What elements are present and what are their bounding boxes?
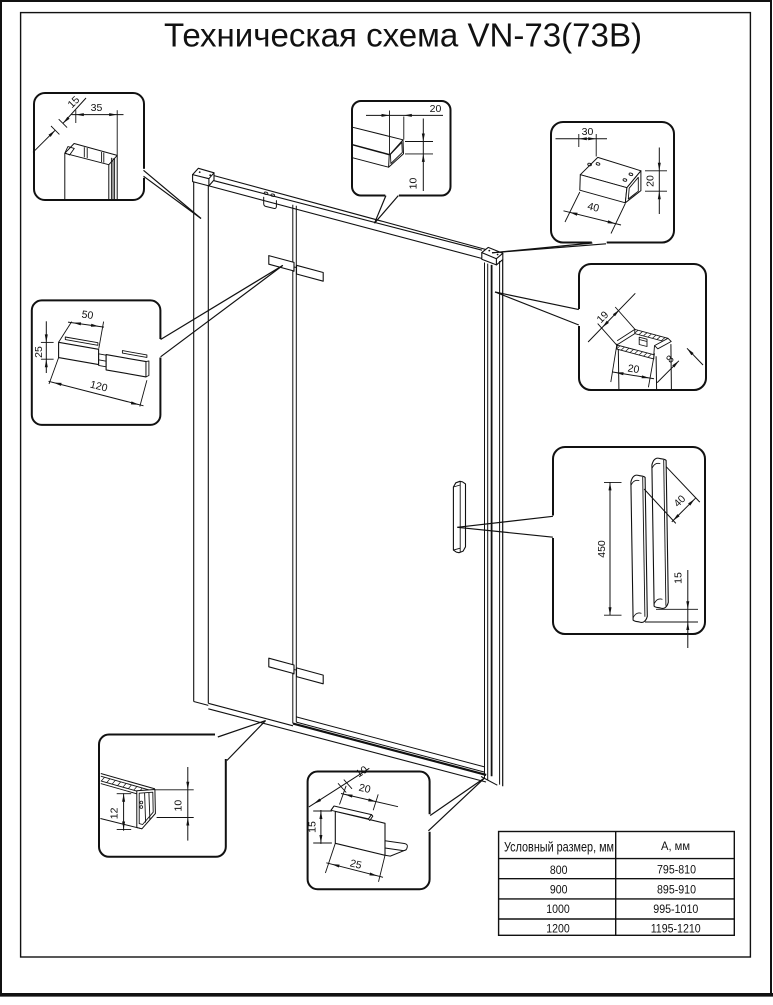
svg-text:50: 50 (81, 309, 94, 323)
svg-text:1200: 1200 (546, 921, 570, 935)
svg-text:795-810: 795-810 (657, 862, 696, 876)
svg-text:12: 12 (108, 807, 120, 819)
svg-text:10: 10 (172, 800, 184, 812)
svg-text:Условный размер, мм: Условный размер, мм (504, 838, 614, 854)
svg-text:35: 35 (91, 102, 103, 114)
svg-text:1000: 1000 (546, 902, 570, 916)
svg-text:25: 25 (33, 346, 45, 358)
svg-text:20: 20 (644, 175, 656, 187)
svg-text:800: 800 (550, 863, 568, 877)
svg-text:15: 15 (672, 572, 684, 584)
svg-text:900: 900 (550, 883, 568, 897)
svg-text:450: 450 (596, 540, 608, 558)
svg-text:20: 20 (430, 103, 442, 115)
svg-text:А, мм: А, мм (661, 839, 690, 853)
svg-text:895-910: 895-910 (657, 882, 696, 896)
svg-text:30: 30 (582, 126, 594, 138)
svg-text:15: 15 (307, 821, 319, 833)
svg-text:995-1010: 995-1010 (653, 902, 698, 916)
svg-text:10: 10 (408, 178, 420, 190)
svg-text:Техническая схема VN-73(73B): Техническая схема VN-73(73B) (164, 17, 642, 54)
svg-text:1195-1210: 1195-1210 (651, 921, 701, 935)
svg-text:20: 20 (627, 362, 641, 376)
